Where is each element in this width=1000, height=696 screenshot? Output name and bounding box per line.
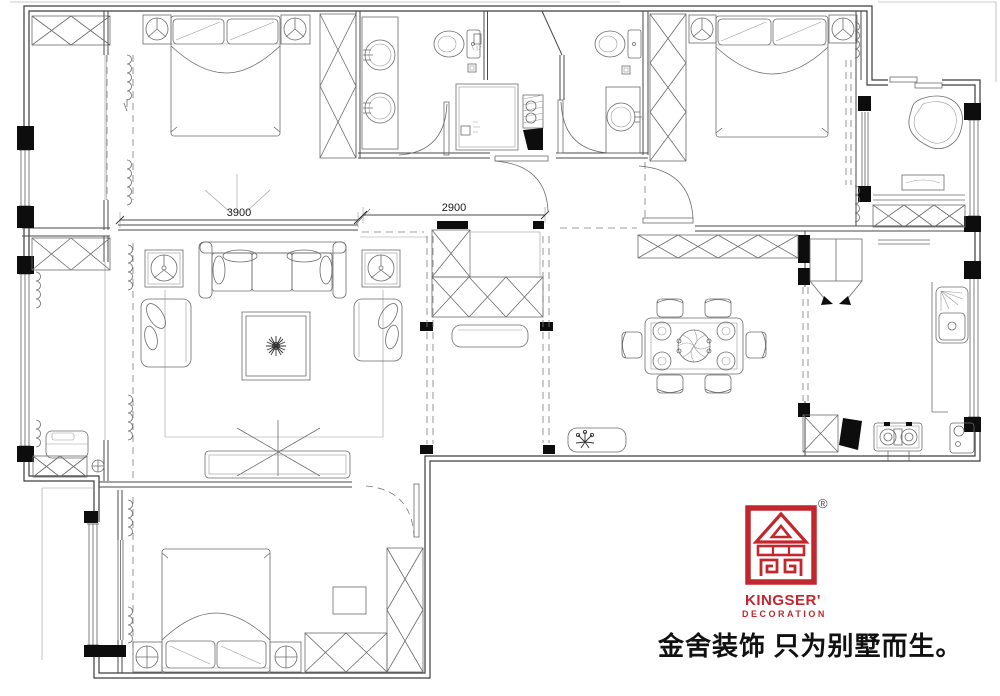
dim-label-3900: 3900 [227,207,251,219]
living-room [141,242,402,478]
bathroom-left [362,17,481,149]
toilet-icon [434,30,480,58]
stove-icon [874,422,922,461]
floor-plan-page: 3900 2900 ® KINGSER' DECORATION 金舍装饰 只为别… [0,0,1000,696]
dim-label-2900: 2900 [442,202,466,214]
master-door-leaf [643,218,693,223]
dimension-2900: 2900 [359,202,549,223]
nightstand-icon [133,642,162,672]
toilet-icon [595,30,641,58]
sideboard-cabinet-icon [638,235,798,258]
kingser-logo-icon [736,502,836,592]
dining-room [622,235,798,393]
brand-tagline: 金舍装饰 只为别墅而生。 [658,626,1000,663]
armchair-icon [141,299,191,367]
small-table-icon [333,587,366,614]
table-flower-icon [266,336,286,356]
shower-room [456,84,543,150]
bench-icon [452,325,528,347]
kidney-desk-icon [909,96,963,149]
floor-drain-icon [468,64,476,72]
entry-hall [432,230,626,452]
storage-cabinet-icon [873,205,965,227]
nightstand-icon [829,15,857,43]
double-bed-icon [171,16,280,136]
storage-cabinet-icon [32,238,110,270]
armchair-icon [354,299,402,361]
logo-name: KINGSER' [742,592,824,609]
washing-machine-icon [46,431,88,458]
wardrobe-icon [305,548,423,672]
basin-icon [363,93,395,123]
bathroom-right [595,30,642,153]
dining-table-icon [645,318,743,374]
floor-drain-icon [92,460,104,472]
bedroom-bottom-door-leaf [414,484,419,537]
kitchen-sink-icon [936,287,968,343]
brand-block: ® KINGSER' DECORATION 金舍装饰 只为别墅而生。 [658,494,1000,684]
plant-icon [568,428,626,452]
shelf [878,240,930,244]
entry-door-leaf [495,156,548,161]
side-table-lamp-icon [362,250,400,287]
wardrobe-icon [320,14,356,158]
basin-icon [363,40,395,70]
shower-stall-icon [456,84,518,150]
storage-cabinet-icon [32,16,110,45]
nightstand-icon [270,642,301,672]
double-bed-icon [162,549,270,672]
sofa-icon [199,242,346,298]
registered-mark: ® [818,496,828,511]
balcony-middle-left [32,238,110,477]
vanity-basin-icon [606,87,642,153]
nightstand-icon [281,15,310,44]
shoe-cabinet-icon [432,230,543,317]
property-lines [10,2,996,82]
bedroom-bottom [133,548,423,672]
side-table-lamp-icon [145,250,183,287]
nightstand-icon [689,15,716,43]
bedroom-top-left [143,14,356,212]
nightstand-icon [143,15,171,44]
column-wedge [839,418,862,450]
logo-subtitle: DECORATION [742,609,824,619]
laundry-unit-icon [523,95,543,128]
cabinet-icon [33,456,87,477]
window-bench-icon [873,175,965,200]
kitchen [803,239,974,461]
cabinet-icon [803,415,838,452]
coffee-table-icon [242,312,310,380]
doors [356,100,693,537]
double-bed-icon [716,16,828,137]
wardrobe-icon [650,14,686,161]
balcony-top-left [32,16,110,45]
tv-icon [205,420,350,478]
study-room [873,96,965,244]
floor-drain-icon [622,66,630,74]
bedroom-master [650,14,857,161]
column-wedge [523,128,543,150]
fridge-icon [810,239,862,305]
bathroom-right-door-leaf [558,100,563,153]
